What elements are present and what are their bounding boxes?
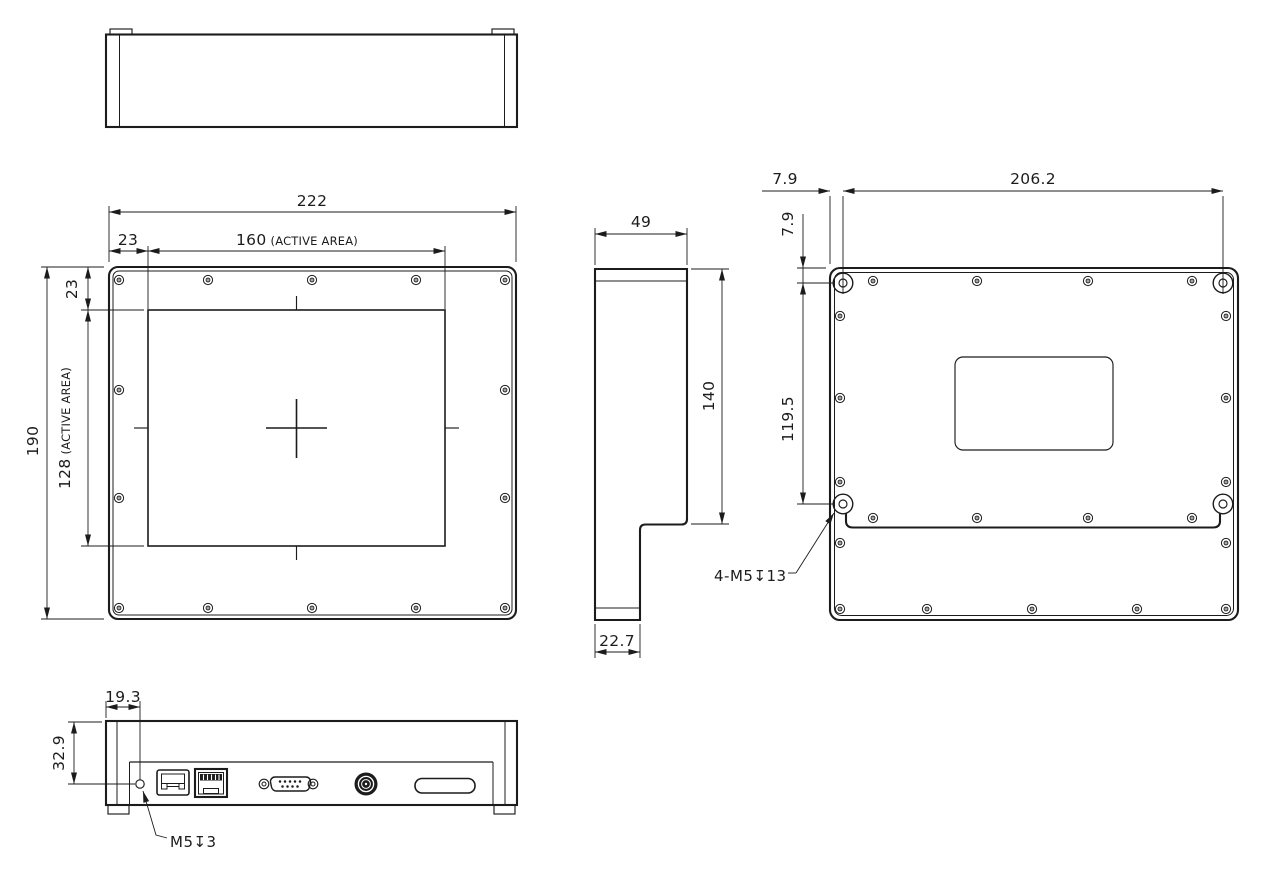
- dim-base-depth: 22.7: [595, 624, 640, 658]
- screw-hole: [500, 493, 509, 502]
- screw-hole: [114, 275, 123, 284]
- port-cover-slot: [415, 779, 475, 794]
- thread-hole-note: M5↧3: [143, 791, 217, 851]
- dim-active-height-label: 128(ACTIVE AREA): [56, 367, 74, 489]
- dim-mount-span-y-label: 119.5: [779, 396, 797, 442]
- panel-pc-dimension-drawing: 222 23 160(ACTIVE AREA) 190 23 128(ACTIV…: [0, 0, 1266, 869]
- screw-hole: [307, 275, 316, 284]
- dim-depth-label: 49: [631, 213, 651, 231]
- engineering-drawing-canvas: 222 23 160(ACTIVE AREA) 190 23 128(ACTIV…: [0, 0, 1266, 869]
- back-view: 7.9 206.2 7.9 119.5 4-M5↧13: [714, 170, 1238, 620]
- mount-thread-note-label: 4-M5↧13: [714, 567, 787, 585]
- screw-hole: [1083, 513, 1092, 522]
- screw-hole: [972, 276, 981, 285]
- dim-mount-span-x-label: 206.2: [1010, 170, 1056, 188]
- screw-hole: [835, 477, 844, 486]
- dim-panel-height-label: 140: [700, 381, 718, 412]
- top-view-outline: [106, 35, 517, 128]
- mount-hole-bottom-right: [1213, 494, 1233, 514]
- screw-hole: [500, 275, 509, 284]
- screw-hole: [835, 393, 844, 402]
- dim-thread-hole-x-label: 19.3: [105, 688, 141, 706]
- dim-active-height: 23 128(ACTIVE AREA): [56, 267, 144, 546]
- screw-hole: [1083, 276, 1092, 285]
- side-view-outline: [595, 269, 687, 620]
- bottom-foot-left: [108, 805, 129, 814]
- bottom-foot-right: [494, 805, 515, 814]
- screw-hole: [868, 276, 877, 285]
- screw-hole: [1132, 604, 1141, 613]
- dim-mount-offset-y-label: 7.9: [779, 211, 797, 237]
- mount-hole-bottom-left: [833, 494, 853, 514]
- dim-bezel-left-label: 23: [118, 231, 138, 249]
- screw-hole: [1221, 311, 1230, 320]
- back-cover-inner-edge: [835, 273, 1234, 616]
- screw-hole: [203, 603, 212, 612]
- port-rj45-ethernet: [195, 769, 227, 797]
- screw-hole: [500, 603, 509, 612]
- screw-hole: [411, 603, 420, 612]
- screw-hole: [411, 275, 420, 284]
- screw-hole: [835, 604, 844, 613]
- bottom-view: 19.3 32.9 M5↧3: [50, 688, 517, 851]
- screw-hole: [835, 538, 844, 547]
- center-cross: [266, 399, 327, 458]
- screw-hole: [307, 603, 316, 612]
- dim-active-width-label: 160(ACTIVE AREA): [236, 231, 358, 249]
- m5-thread-hole: [136, 780, 144, 788]
- front-bezel-inner-edge: [113, 271, 512, 615]
- screw-hole: [500, 385, 509, 394]
- screw-hole: [1221, 604, 1230, 613]
- port-din-power: [355, 773, 377, 795]
- dim-thread-hole-y: 32.9: [50, 722, 135, 784]
- port-db9-serial: [259, 777, 318, 791]
- port-rj45-socket: [157, 770, 189, 795]
- dim-overall-height-label: 190: [24, 426, 42, 457]
- screw-hole: [1027, 604, 1036, 613]
- screw-hole: [1187, 276, 1196, 285]
- screw-hole: [835, 311, 844, 320]
- dim-mount-span-y: 7.9 119.5: [779, 211, 834, 504]
- dim-depth: 49: [595, 213, 687, 265]
- dim-active-width: 23 160(ACTIVE AREA): [109, 231, 445, 309]
- dim-thread-hole-y-label: 32.9: [50, 735, 68, 771]
- screw-hole: [972, 513, 981, 522]
- front-bezel-screws: [114, 275, 509, 612]
- dim-overall-width-label: 222: [297, 192, 328, 210]
- back-cover-screws: [835, 276, 1230, 613]
- dim-bezel-top-label: 23: [63, 279, 81, 299]
- dim-overall-width: 222: [109, 192, 516, 262]
- top-view: [106, 29, 517, 127]
- front-view: 222 23 160(ACTIVE AREA) 190 23 128(ACTIV…: [24, 192, 516, 619]
- dim-mount-offset-x-label: 7.9: [772, 170, 798, 188]
- dim-panel-height: 140: [691, 269, 729, 524]
- back-label-recess: [955, 357, 1113, 450]
- screw-hole: [203, 275, 212, 284]
- screw-hole: [1221, 393, 1230, 402]
- screw-hole: [1221, 538, 1230, 547]
- screw-hole: [868, 513, 877, 522]
- screw-hole: [114, 385, 123, 394]
- mount-thread-note: 4-M5↧13: [714, 513, 834, 585]
- screw-hole: [922, 604, 931, 613]
- screw-hole: [1221, 477, 1230, 486]
- thread-hole-note-label: M5↧3: [170, 833, 217, 851]
- cover-hook-right: [1205, 514, 1220, 528]
- dim-base-depth-label: 22.7: [599, 632, 635, 650]
- screw-hole: [1187, 513, 1196, 522]
- screw-hole: [114, 493, 123, 502]
- side-view: 49 140 22.7: [595, 213, 729, 658]
- front-view-outline: [109, 267, 516, 619]
- screw-hole: [114, 603, 123, 612]
- dim-thread-hole-x: 19.3: [105, 688, 141, 780]
- cover-hook-left: [846, 514, 861, 528]
- back-view-outline: [830, 268, 1238, 620]
- back-cover-parting-line: [846, 514, 1220, 528]
